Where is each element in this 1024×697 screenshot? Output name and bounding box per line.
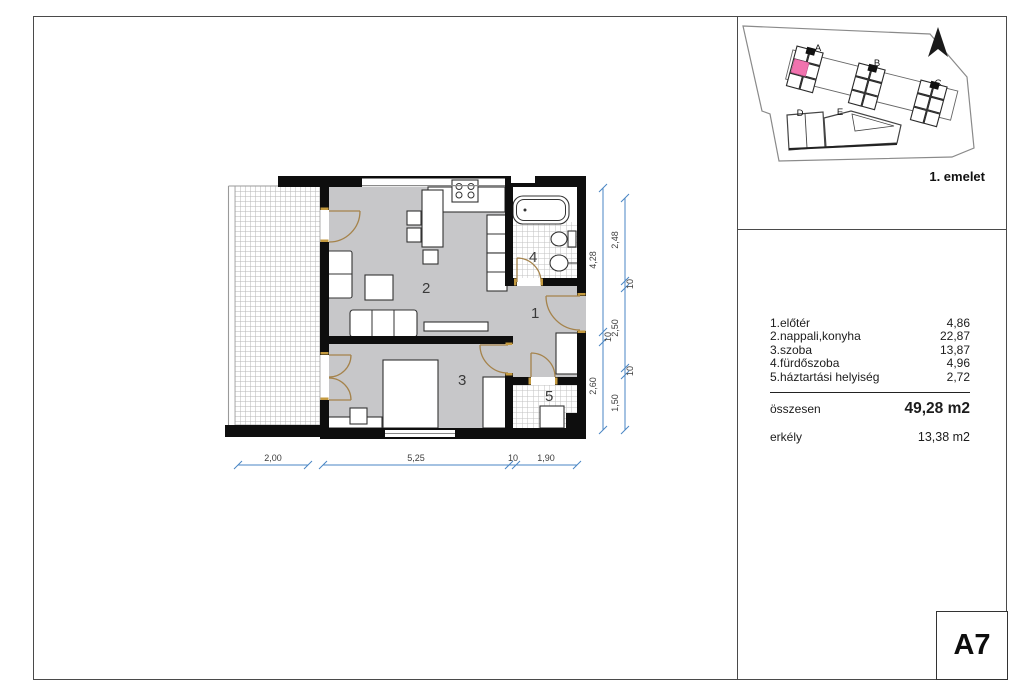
room-name: 2.nappali,konyha [770,330,861,343]
dim-right-outer-4: 1,50 [610,394,620,412]
total-row: összesen 49,28 m2 [770,400,970,418]
dim-bottom-3: 1,90 [537,453,555,463]
room-label-living: 2 [422,280,430,297]
dim-right-inner-0: 4,28 [588,251,598,269]
dim-right-outer-0: 2,48 [610,231,620,249]
toilet [551,231,576,247]
room-area: 4,86 [947,317,970,330]
sofa [350,310,417,337]
dim-bottom-0: 2,00 [264,453,282,463]
dim-right-outer-2: 2,50 [610,319,620,337]
building-e-label: E [837,107,843,118]
room-label-hall: 1 [531,305,539,322]
room-area: 4,96 [947,357,970,370]
total-value: 49,28 m2 [905,400,971,418]
armchair [325,251,352,298]
room-label-bath: 4 [529,249,537,266]
room-label-bedroom: 3 [458,372,466,389]
floor-level-label: 1. emelet [845,169,985,184]
tv-cabinet [424,322,488,331]
bathtub [513,196,569,224]
rooms-table: 1.előtér 4,86 2.nappali,konyha 22,87 3.s… [770,317,970,444]
nightstand [350,408,367,424]
balcony [229,186,321,426]
dim-right-inner-2: 2,60 [588,377,598,395]
coffee-table [365,275,393,300]
bathroom-tiles [513,222,577,278]
stove-icon [452,180,478,202]
bedroom-wardrobe [483,377,507,428]
site-plan: A B C D E [737,16,1009,232]
unit-label: A7 [953,629,990,662]
room-area: 22,87 [940,330,970,343]
table-divider [770,392,970,393]
dim-right-outer-1: 10 [625,279,635,289]
room-name: 3.szoba [770,344,812,357]
room-name: 5.háztartási helyiség [770,371,879,384]
building-d-label: D [797,108,804,119]
table-row: 5.háztartási helyiség 2,72 [770,371,970,384]
building-c-label: C [935,78,942,89]
room-area: 13,87 [940,344,970,357]
total-label: összesen [770,402,821,416]
room-name: 1.előtér [770,317,810,330]
unit-badge: A7 [936,611,1008,680]
balcony-value: 13,38 m2 [918,430,970,444]
floor-plan: 2 1 4 3 5 4,28 10 2,60 2,48 10 2,50 10 1… [225,176,637,476]
room-name: 4.fürdőszoba [770,357,839,370]
dim-bottom-2: 10 [508,453,518,463]
balcony-label: erkély [770,430,802,444]
room-label-utility: 5 [545,388,553,405]
table-row: 2.nappali,konyha 22,87 [770,330,970,343]
table-row: 3.szoba 13,87 [770,344,970,357]
building-a-label: A [815,43,822,54]
balcony-row: erkély 13,38 m2 [770,430,970,444]
bed [383,360,438,428]
washing-machine [540,406,564,428]
table-row: 4.fürdőszoba 4,96 [770,357,970,370]
room-area: 2,72 [947,371,970,384]
hall-wardrobe [556,333,579,374]
dim-bottom-1: 5,25 [407,453,425,463]
dim-right-outer-3: 10 [625,366,635,376]
floorplan-sheet: 2 1 4 3 5 4,28 10 2,60 2,48 10 2,50 10 1… [0,0,1024,697]
building-b-label: B [874,58,880,69]
table-row: 1.előtér 4,86 [770,317,970,330]
